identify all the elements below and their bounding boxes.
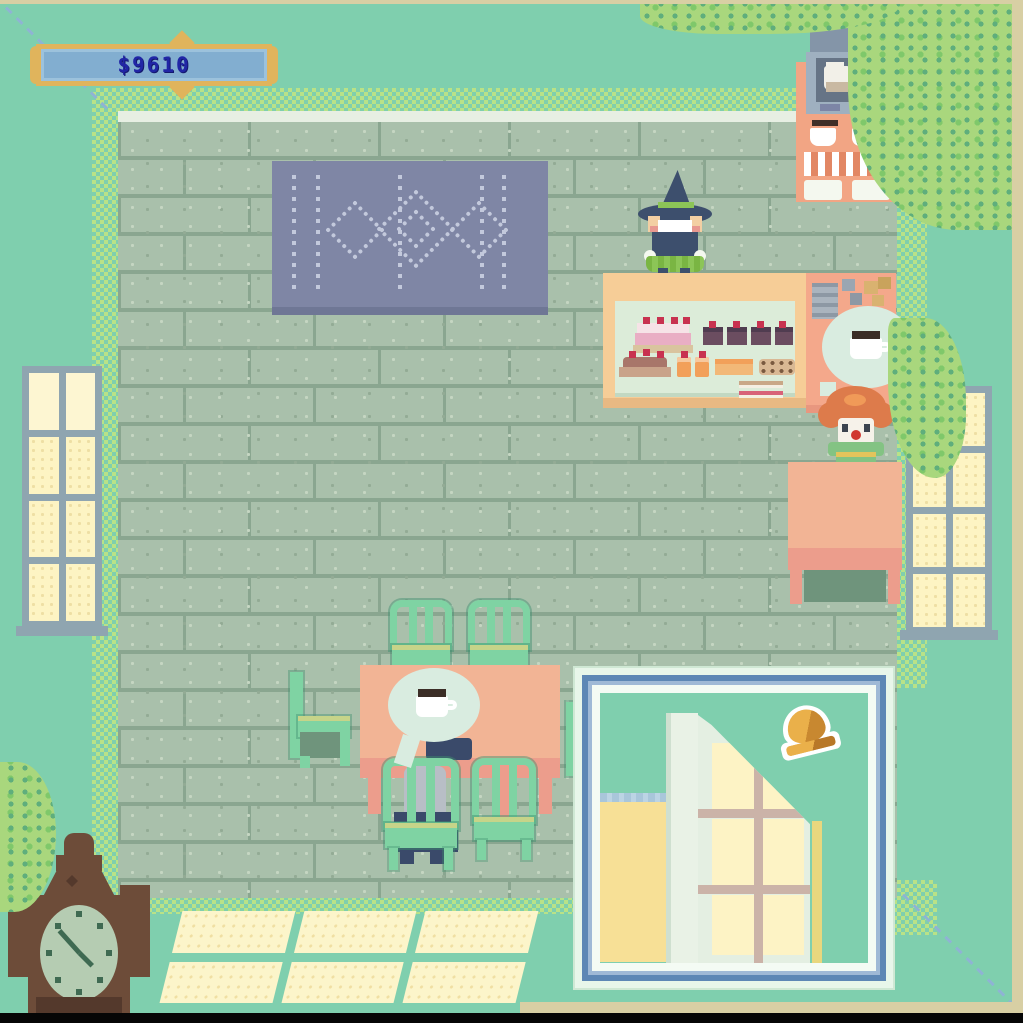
counter-item	[864, 281, 878, 294]
money-hud: $9610	[34, 42, 274, 88]
wall-rug	[272, 161, 548, 307]
customer-table	[788, 462, 902, 604]
cake-slice	[739, 391, 783, 398]
table-leg	[888, 570, 900, 604]
cup-shadow	[812, 120, 838, 126]
orange-drink	[695, 357, 709, 377]
muffin-base	[619, 367, 671, 377]
chair	[472, 758, 536, 860]
cabinet-side	[796, 62, 806, 122]
counter-item	[842, 279, 855, 291]
witch-skirt	[646, 256, 704, 272]
clown-nose	[851, 430, 861, 440]
screen-edge-bottom	[520, 1002, 1023, 1013]
chair	[390, 600, 452, 668]
order-bubble-table[interactable]	[388, 668, 480, 742]
clown-hair-shine	[844, 394, 866, 406]
notification-scene	[600, 693, 868, 963]
witch-shopkeeper[interactable]	[636, 170, 714, 274]
witch-hat-band	[658, 202, 694, 208]
screen-edge-top	[0, 0, 1023, 4]
right-window-sill	[900, 630, 998, 640]
kettle-lid	[826, 62, 844, 68]
counter-item	[850, 293, 862, 305]
orange-drink	[677, 357, 691, 377]
coffee-cup	[810, 128, 836, 146]
kettle-band	[826, 82, 848, 92]
clock-minute-hand	[58, 929, 82, 955]
clown-eye	[864, 424, 870, 432]
pastry-display	[615, 301, 795, 397]
notification-panel[interactable]	[575, 668, 893, 988]
money-banner: $9610	[36, 44, 272, 86]
screen-bottom-bar	[0, 1013, 1023, 1023]
window-light-floor	[152, 905, 546, 1009]
door-wall	[600, 802, 666, 962]
orange-loaf	[715, 359, 753, 375]
screen-edge-right	[1012, 0, 1023, 1013]
chocolate-loaf	[775, 327, 793, 345]
coffee-cup-icon	[850, 338, 882, 359]
bakery-counter[interactable]	[603, 273, 806, 408]
witch-dress	[652, 232, 698, 258]
counter-item	[878, 277, 891, 289]
chocolate-loaf	[703, 327, 723, 345]
table-top	[788, 462, 902, 548]
strawberry-cake-top	[637, 323, 689, 333]
money-value: $9610	[117, 53, 190, 77]
strawberry-cake	[635, 333, 691, 345]
side-chair	[290, 672, 354, 776]
counter-item	[872, 295, 884, 306]
door-edge	[812, 821, 822, 963]
bell-icon	[772, 698, 846, 769]
machine-strip	[820, 104, 840, 111]
chair-occupied	[383, 758, 459, 870]
chocolate-loaf	[727, 327, 747, 345]
cake-slice	[739, 381, 783, 388]
cookie-pile	[759, 359, 795, 375]
left-window	[22, 366, 102, 628]
chocolate-loaf	[751, 327, 771, 345]
cash-register	[812, 283, 838, 319]
clock-face	[40, 905, 118, 1001]
corner-line-bottomright	[902, 893, 1017, 1008]
clown-eye	[842, 424, 848, 432]
left-window-sill	[16, 626, 108, 636]
tray	[804, 180, 842, 200]
table-leg	[790, 570, 802, 604]
game-viewport: $9610	[0, 0, 1023, 1023]
table-apron	[788, 548, 902, 570]
door-jamb	[666, 713, 698, 963]
room-top-wall	[118, 111, 897, 122]
coffee-cup-icon	[416, 696, 448, 717]
clown-customer[interactable]	[818, 386, 894, 474]
clock-hour-hand	[78, 951, 94, 967]
chair	[468, 600, 530, 668]
